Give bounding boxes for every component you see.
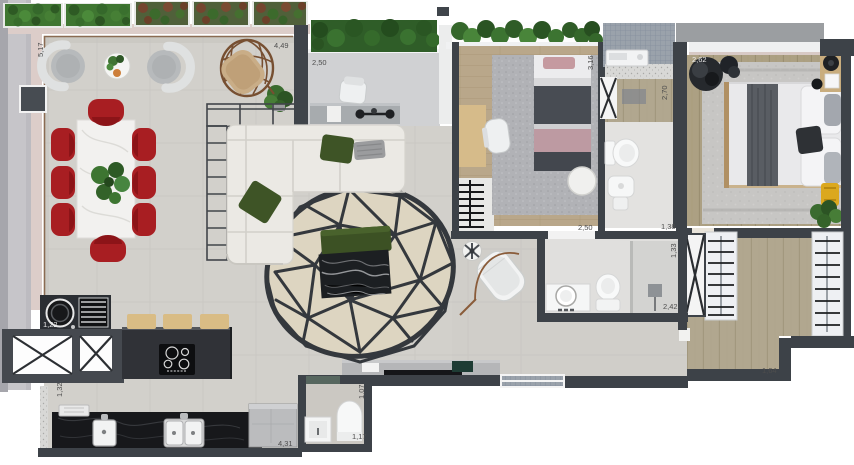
svg-text:1,38: 1,38 [661, 222, 676, 231]
svg-text:2,50: 2,50 [578, 223, 593, 232]
svg-text:1,07: 1,07 [357, 384, 366, 399]
svg-text:1,32: 1,32 [55, 382, 64, 397]
svg-text:1,17: 1,17 [352, 432, 367, 441]
svg-text:1,22: 1,22 [43, 320, 58, 329]
svg-text:3,16: 3,16 [586, 55, 595, 70]
svg-text:5,17: 5,17 [36, 42, 45, 57]
svg-text:2,70: 2,70 [660, 85, 669, 100]
svg-text:2,42: 2,42 [663, 302, 678, 311]
svg-text:2,50: 2,50 [312, 58, 327, 67]
svg-text:4,49: 4,49 [274, 41, 289, 50]
svg-text:1,64: 1,64 [762, 366, 777, 375]
svg-text:4,31: 4,31 [278, 439, 293, 448]
svg-text:1,33: 1,33 [669, 243, 678, 258]
svg-text:2,62: 2,62 [692, 55, 707, 64]
